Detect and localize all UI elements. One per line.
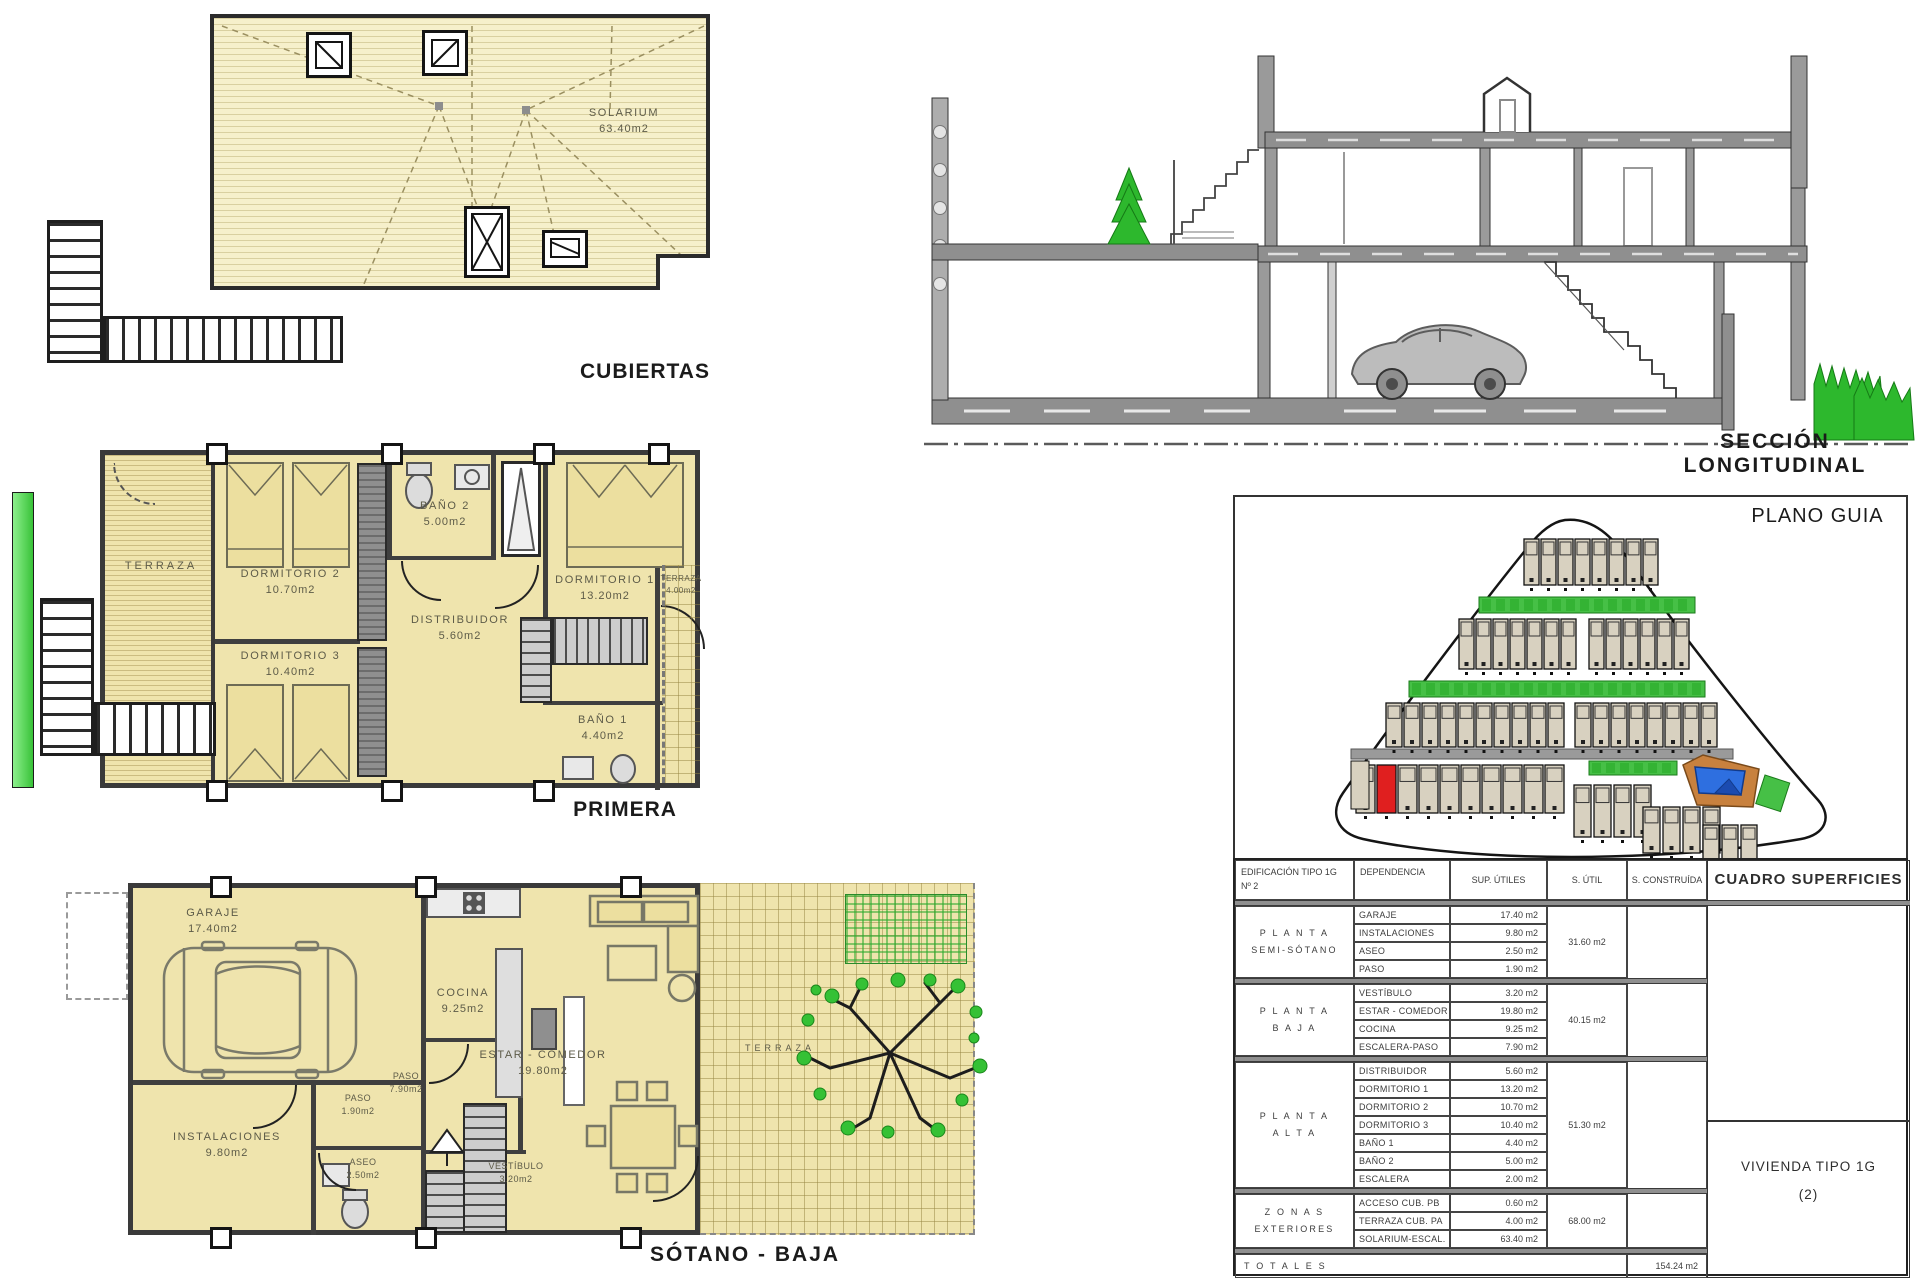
site-plot-number-mark (1483, 750, 1486, 753)
double-bed-icon (565, 461, 685, 569)
site-plot-number-mark (1448, 816, 1451, 819)
site-house-unit (1482, 765, 1501, 813)
site-house-entry (1581, 578, 1585, 582)
s-construida-span-cell (1627, 906, 1707, 1248)
site-road (1351, 749, 1733, 759)
sup-utiles-cell: 5.60 m2 (1450, 1062, 1547, 1080)
site-green-texture (1664, 683, 1673, 695)
site-house-entry (1392, 740, 1396, 744)
dependencia-cell: DORMITORIO 1 (1354, 1080, 1450, 1098)
skylight-icon (422, 30, 468, 76)
exterior-stair-profile (1171, 150, 1259, 244)
site-house-entry (1427, 806, 1431, 810)
dependencia-cell: DISTRIBUIDOR (1354, 1062, 1450, 1080)
site-house-entry (1629, 662, 1633, 666)
sup-utiles-cell: 9.25 m2 (1450, 1020, 1547, 1038)
garaje-label: GARAJE17.40m2 (153, 906, 273, 938)
site-green-texture (1580, 599, 1589, 611)
site-house-entry (1581, 740, 1585, 744)
s-util-cell: 51.30 m2 (1547, 1062, 1627, 1188)
site-house-entry (1464, 740, 1468, 744)
skylight-icon (542, 230, 588, 268)
site-house-entry (1533, 662, 1537, 666)
roof-exterior-stair-vertical (47, 220, 103, 363)
s-util-cell: 68.00 m2 (1547, 1194, 1627, 1248)
door-arc (495, 565, 539, 609)
instalaciones-label: INSTALACIONES9.80m2 (147, 1130, 307, 1162)
sotano-plan: GARAJE17.40m2 INSTALACIONES9.80m2 PASO1.… (128, 883, 700, 1235)
s-util-cell: 40.15 m2 (1547, 984, 1627, 1056)
site-green-texture (1594, 599, 1603, 611)
site-green-texture (1620, 763, 1629, 773)
site-plot-number-mark (1530, 588, 1533, 591)
interior-stair-upper (1544, 262, 1616, 332)
site-house-entry (1536, 740, 1540, 744)
site-green-texture (1524, 599, 1533, 611)
col-header-edificacion: EDIFICACIÓN TIPO 1G Nº 2 (1235, 860, 1354, 900)
site-plot-number-mark (1581, 588, 1584, 591)
site-green-texture (1648, 763, 1657, 773)
site-plot-number-mark (1672, 750, 1675, 753)
sup-utiles-cell: 5.00 m2 (1450, 1152, 1547, 1170)
site-house-entry (1707, 740, 1711, 744)
site-end-unit (1351, 761, 1369, 809)
site-house-entry (1500, 740, 1504, 744)
site-house-entry (1518, 740, 1522, 744)
site-green-texture (1426, 683, 1435, 695)
site-house-unit (1503, 765, 1522, 813)
table-separator (1235, 978, 1707, 984)
site-plot-number-mark (1537, 750, 1540, 753)
dependencia-cell: ESCALERA-PASO (1354, 1038, 1450, 1056)
dorm2-label: DORMITORIO 210.70m2 (223, 567, 358, 599)
site-plot-number-mark (1646, 672, 1649, 675)
site-plot-number-mark (1629, 672, 1632, 675)
site-house-entry (1554, 740, 1558, 744)
site-house-entry (1469, 806, 1473, 810)
site-house-entry (1601, 830, 1605, 834)
site-house-unit (1524, 765, 1543, 813)
site-plot-number-mark (1621, 840, 1624, 843)
col-header-sup-utiles: SUP. ÚTILES (1450, 860, 1547, 900)
section-drawing (924, 20, 1914, 462)
site-green-texture (1662, 763, 1671, 773)
sup-utiles-cell: 10.70 m2 (1450, 1098, 1547, 1116)
site-house-entry (1617, 740, 1621, 744)
site-plot-number-mark (1600, 750, 1603, 753)
bano1-label: BAÑO 14.40m2 (553, 713, 653, 745)
twin-beds-icon (225, 461, 353, 569)
site-highlight-unit (1377, 765, 1396, 813)
site-green-texture (1552, 599, 1561, 611)
site-house-entry (1680, 662, 1684, 666)
floor-label-cell: P L A N T A SEMI-SÓTANO (1235, 906, 1354, 978)
site-plot-number-mark (1385, 816, 1388, 819)
site-plot-number-mark (1406, 816, 1409, 819)
site-green-texture (1678, 683, 1687, 695)
site-plot-number-mark (1465, 750, 1468, 753)
sotano-terraza-label: TERRAZA (730, 1042, 830, 1055)
table-separator (1235, 1188, 1707, 1194)
site-house-entry (1635, 740, 1639, 744)
site-house-entry (1689, 740, 1693, 744)
sup-utiles-cell: 0.60 m2 (1450, 1194, 1547, 1212)
sotano-title: SÓTANO - BAJA (620, 1243, 870, 1267)
site-plot-number-mark (1519, 750, 1522, 753)
site-house-entry (1482, 662, 1486, 666)
stair-arrow-icon (429, 1128, 465, 1168)
stove-icon (463, 892, 485, 914)
dependencia-cell: INSTALACIONES (1354, 924, 1450, 942)
site-house-entry (1564, 578, 1568, 582)
cocina-label: COCINA9.25m2 (423, 986, 503, 1018)
dependencia-cell: DORMITORIO 2 (1354, 1098, 1450, 1116)
site-green-texture (1622, 683, 1631, 695)
solarium-label: SOLARIUM63.40m2 (544, 106, 704, 138)
driveway-dashed (66, 892, 128, 1000)
site-house-entry (1516, 662, 1520, 666)
totales-cell: T O T A L E S (1235, 1254, 1627, 1278)
sup-utiles-cell: 4.40 m2 (1450, 1134, 1547, 1152)
site-house-entry (1490, 806, 1494, 810)
site-house-entry (1690, 846, 1694, 850)
car-side-icon (1352, 325, 1526, 399)
site-house-entry (1428, 740, 1432, 744)
site-green-texture (1482, 683, 1491, 695)
floor-label-cell: Z O N A S EXTERIORES (1235, 1194, 1354, 1248)
site-house-unit (1545, 765, 1564, 813)
site-green-texture (1592, 763, 1601, 773)
site-plot-number-mark (1708, 750, 1711, 753)
terraza-left-label: TERRAZA (107, 559, 215, 575)
cuadro-superficies-heading: CUADRO SUPERFICIES (1708, 871, 1909, 888)
dependencia-cell: BAÑO 2 (1354, 1152, 1450, 1170)
total-construida-cell: 154.24 m2 (1627, 1254, 1707, 1278)
dependencia-cell: ESCALERA (1354, 1170, 1450, 1188)
site-green-texture (1664, 599, 1673, 611)
primera-green-strip (12, 492, 34, 788)
site-plot-number-mark (1618, 750, 1621, 753)
site-plot-number-mark (1615, 588, 1618, 591)
site-house-entry (1670, 846, 1674, 850)
site-plot-number-mark (1490, 816, 1493, 819)
roof-plan-title: CUBIERTAS (555, 360, 735, 384)
site-house-entry (1595, 662, 1599, 666)
site-plot-number-mark (1601, 840, 1604, 843)
site-green-texture (1538, 599, 1547, 611)
sup-utiles-cell: 17.40 m2 (1450, 906, 1547, 924)
site-plot-number-mark (1501, 750, 1504, 753)
cuadro-superficies-table: EDIFICACIÓN TIPO 1G Nº 2DEPENDENCIASUP. … (1233, 858, 1908, 1276)
site-house-entry (1653, 740, 1657, 744)
site-green-texture (1538, 683, 1547, 695)
site-house-entry (1530, 578, 1534, 582)
site-plot-number-mark (1636, 750, 1639, 753)
sup-utiles-cell: 1.90 m2 (1450, 960, 1547, 978)
skylight-icon (306, 32, 352, 78)
site-green-texture (1606, 763, 1615, 773)
site-house-entry (1550, 662, 1554, 666)
site-plot-number-mark (1649, 588, 1652, 591)
sup-utiles-cell: 13.20 m2 (1450, 1080, 1547, 1098)
dependencia-cell: BAÑO 1 (1354, 1134, 1450, 1152)
site-house-entry (1553, 806, 1557, 810)
table-separator (1235, 900, 1910, 906)
sup-utiles-cell: 63.40 m2 (1450, 1230, 1547, 1248)
sup-utiles-cell: 10.40 m2 (1450, 1116, 1547, 1134)
architect-sheet: { "titles": { "cubiertas": "CUBIERTAS", … (0, 0, 1920, 1280)
site-plot-number-mark (1533, 672, 1536, 675)
site-green-texture (1496, 683, 1505, 695)
site-plot-number-mark (1511, 816, 1514, 819)
site-plan-drawing (1233, 495, 1908, 862)
primera-exterior-stair-vertical (40, 598, 94, 756)
site-house-entry (1663, 662, 1667, 666)
site-lawn (1756, 775, 1790, 812)
site-green-texture (1454, 683, 1463, 695)
site-plot-number-mark (1680, 672, 1683, 675)
dependencia-cell: TERRAZA CUB. PA (1354, 1212, 1450, 1230)
site-green-texture (1412, 683, 1421, 695)
sup-utiles-cell: 2.50 m2 (1450, 942, 1547, 960)
floor-label-cell: P L A N T A B A J A (1235, 984, 1354, 1056)
section-title: SECCIÓN LONGITUDINAL (1630, 430, 1920, 478)
bath1-fixtures-icon (561, 751, 651, 785)
twin-beds-icon (225, 683, 353, 783)
dependencia-cell: SOLARIUM-ESCAL. (1354, 1230, 1450, 1248)
site-green-texture (1678, 599, 1687, 611)
aseo-label: ASEO2.50m2 (328, 1156, 398, 1182)
site-green-texture (1650, 599, 1659, 611)
section-bushes-icon (1814, 364, 1914, 440)
site-plot-number-mark (1663, 672, 1666, 675)
interior-stair-lower (1616, 332, 1676, 398)
site-house-entry (1499, 662, 1503, 666)
site-plot-number-mark (1553, 816, 1556, 819)
panel-divider (1708, 1120, 1909, 1122)
distribuidor-label: DISTRIBUIDOR5.60m2 (395, 613, 525, 645)
stair-hatch-icon (464, 206, 510, 278)
wardrobe-strip (357, 463, 387, 641)
site-plot-number-mark (1547, 588, 1550, 591)
site-plot-number-mark (1364, 816, 1367, 819)
bano2-label: BAÑO 25.00m2 (393, 499, 497, 531)
site-house-entry (1567, 662, 1571, 666)
table-separator (1235, 1248, 1707, 1254)
site-green-texture (1634, 763, 1643, 773)
col-header-dependencia: DEPENDENCIA (1354, 860, 1450, 900)
dependencia-cell: ESTAR - COMEDOR (1354, 1002, 1450, 1020)
site-house-entry (1632, 578, 1636, 582)
site-house-entry (1649, 578, 1653, 582)
dependencia-cell: GARAJE (1354, 906, 1450, 924)
site-house-entry (1650, 846, 1654, 850)
site-house-entry (1599, 740, 1603, 744)
site-plot-number-mark (1550, 672, 1553, 675)
site-house-entry (1547, 578, 1551, 582)
sup-utiles-cell: 4.00 m2 (1450, 1212, 1547, 1230)
dependencia-cell: PASO (1354, 960, 1450, 978)
cuadro-superficies-panel: CUADRO SUPERFICIES VIVIENDA TIPO 1G(2) (1707, 860, 1910, 1278)
site-plot-number-mark (1429, 750, 1432, 753)
terraza-green-pergola (845, 894, 967, 964)
site-green-texture (1608, 599, 1617, 611)
door-arc (253, 1085, 297, 1129)
site-plot-number-mark (1411, 750, 1414, 753)
site-green-texture (1608, 683, 1617, 695)
site-green-texture (1622, 599, 1631, 611)
site-plot-number-mark (1690, 750, 1693, 753)
site-green-texture (1566, 599, 1575, 611)
site-plot-number-mark (1427, 816, 1430, 819)
site-plot-number-mark (1555, 750, 1558, 753)
site-plot-number-mark (1447, 750, 1450, 753)
vivienda-tipo-label: VIVIENDA TIPO 1G(2) (1708, 1153, 1909, 1210)
site-house-entry (1406, 806, 1410, 810)
site-plot-number-mark (1654, 750, 1657, 753)
closet-triangle (501, 461, 541, 557)
site-green-texture (1636, 683, 1645, 695)
site-house-entry (1532, 806, 1536, 810)
site-green-texture (1440, 683, 1449, 695)
site-green-texture (1496, 599, 1505, 611)
site-house-entry (1448, 806, 1452, 810)
dependencia-cell: VESTÍBULO (1354, 984, 1450, 1002)
site-house-entry (1621, 830, 1625, 834)
site-green-texture (1482, 599, 1491, 611)
site-house-unit (1419, 765, 1438, 813)
primera-terraza-right-area (662, 565, 700, 783)
street-level-slab (932, 244, 1258, 260)
site-green-texture (1468, 683, 1477, 695)
site-plot-number-mark (1532, 816, 1535, 819)
site-plot-number-mark (1581, 840, 1584, 843)
site-plot-number-mark (1582, 750, 1585, 753)
floor-label-cell: P L A N T A A L T A (1235, 1062, 1354, 1188)
site-house-unit (1398, 765, 1417, 813)
site-plot-number-mark (1499, 672, 1502, 675)
kitchen-appliance (531, 1008, 557, 1050)
section-tree-icon (1108, 168, 1150, 244)
site-green-texture (1692, 683, 1701, 695)
site-plot-number-mark (1564, 588, 1567, 591)
site-house-entry (1446, 740, 1450, 744)
site-house-entry (1615, 578, 1619, 582)
site-green-texture (1636, 599, 1645, 611)
dorm1-label: DORMITORIO 113.20m2 (545, 573, 665, 605)
site-green-texture (1524, 683, 1533, 695)
car-top-icon (158, 940, 363, 1080)
dependencia-cell: ASEO (1354, 942, 1450, 960)
site-house-entry (1646, 662, 1650, 666)
site-green-texture (1566, 683, 1575, 695)
site-green-texture (1510, 683, 1519, 695)
door-arc (401, 561, 441, 601)
site-house-entry (1465, 662, 1469, 666)
site-plot-number-mark (1516, 672, 1519, 675)
site-plot-number-mark (1598, 588, 1601, 591)
dorm3-label: DORMITORIO 310.40m2 (223, 649, 358, 681)
site-house-unit (1594, 785, 1611, 837)
terraza-right-label: TERRAZA4.00m2 (657, 573, 705, 596)
site-green-texture (1580, 683, 1589, 695)
site-plot-number-mark (1612, 672, 1615, 675)
site-plot-number-mark (1393, 750, 1396, 753)
dependencia-cell: ACCESO CUB. PB (1354, 1194, 1450, 1212)
site-house-unit (1440, 765, 1459, 813)
vestibulo-label: VESTÍBULO3.20m2 (471, 1160, 561, 1186)
paso2-label: PASO7.90m2 (371, 1070, 441, 1096)
estar-label: ESTAR - COMEDOR19.80m2 (463, 1048, 623, 1080)
col-header-s-construida: S. CONSTRUÍDA (1627, 860, 1707, 900)
site-plot-number-mark (1482, 672, 1485, 675)
site-plot-number-mark (1595, 672, 1598, 675)
dependencia-cell: COCINA (1354, 1020, 1450, 1038)
site-house-entry (1598, 578, 1602, 582)
site-house-unit (1461, 765, 1480, 813)
roof-exterior-stair-horizontal (103, 316, 343, 363)
site-house-entry (1410, 740, 1414, 744)
wardrobe-strip (357, 647, 387, 777)
s-util-cell: 31.60 m2 (1547, 906, 1627, 978)
site-house-entry (1511, 806, 1515, 810)
col-header-s-util: S. ÚTIL (1547, 860, 1627, 900)
roof-notch (656, 254, 710, 290)
site-house-unit (1614, 785, 1631, 837)
site-house-entry (1612, 662, 1616, 666)
site-plot-number-mark (1469, 816, 1472, 819)
section-door (1624, 168, 1652, 246)
sup-utiles-cell: 2.00 m2 (1450, 1170, 1547, 1188)
site-green-texture (1510, 599, 1519, 611)
stair-bulkhead (1484, 78, 1530, 132)
site-house-entry (1482, 740, 1486, 744)
primera-title: PRIMERA (560, 798, 690, 822)
site-green-texture (1552, 683, 1561, 695)
sup-utiles-cell: 3.20 m2 (1450, 984, 1547, 1002)
site-house-entry (1671, 740, 1675, 744)
sup-utiles-cell: 19.80 m2 (1450, 1002, 1547, 1020)
sup-utiles-cell: 7.90 m2 (1450, 1038, 1547, 1056)
sotano-stair (425, 1170, 465, 1233)
site-green-texture (1594, 683, 1603, 695)
site-plot-number-mark (1567, 672, 1570, 675)
table-separator (1235, 1056, 1707, 1062)
site-plot-number-mark (1632, 588, 1635, 591)
site-green-texture (1650, 683, 1659, 695)
site-house-entry (1581, 830, 1585, 834)
site-plot-number-mark (1465, 672, 1468, 675)
sup-utiles-cell: 9.80 m2 (1450, 924, 1547, 942)
sofa-icon (588, 894, 700, 1002)
roof-plan: SOLARIUM63.40m2 (210, 14, 710, 290)
primera-stair (552, 617, 648, 665)
site-house-unit (1574, 785, 1591, 837)
primera-exterior-stair-horizontal (94, 702, 216, 756)
dependencia-cell: DORMITORIO 3 (1354, 1116, 1450, 1134)
